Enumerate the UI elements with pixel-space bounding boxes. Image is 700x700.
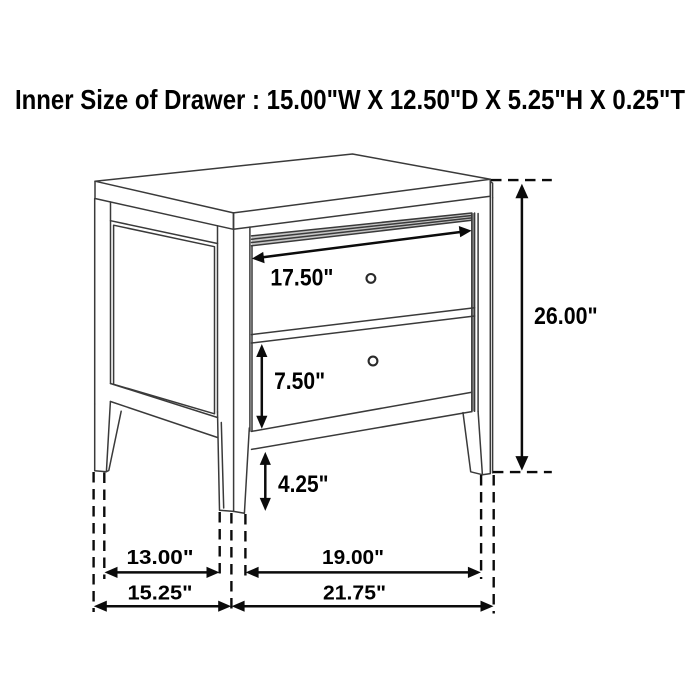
svg-text:Inner Size of Drawer : 15.00"W: Inner Size of Drawer : 15.00"W X 12.50"D… (15, 84, 685, 115)
svg-text:17.50": 17.50" (270, 264, 333, 291)
svg-text:15.25": 15.25" (128, 583, 193, 605)
svg-text:13.00": 13.00" (127, 547, 194, 569)
svg-text:26.00": 26.00" (534, 303, 598, 330)
svg-text:4.25": 4.25" (278, 471, 329, 498)
svg-text:19.00": 19.00" (322, 547, 384, 569)
svg-text:7.50": 7.50" (274, 368, 325, 395)
svg-text:21.75": 21.75" (323, 582, 386, 604)
